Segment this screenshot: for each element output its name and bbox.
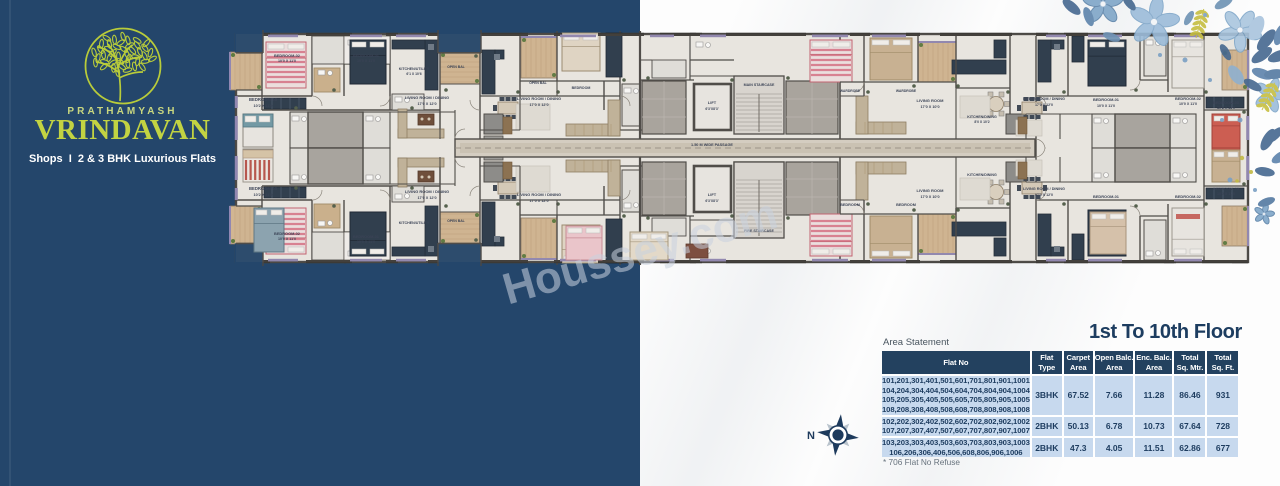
svg-text:N: N	[807, 430, 815, 442]
